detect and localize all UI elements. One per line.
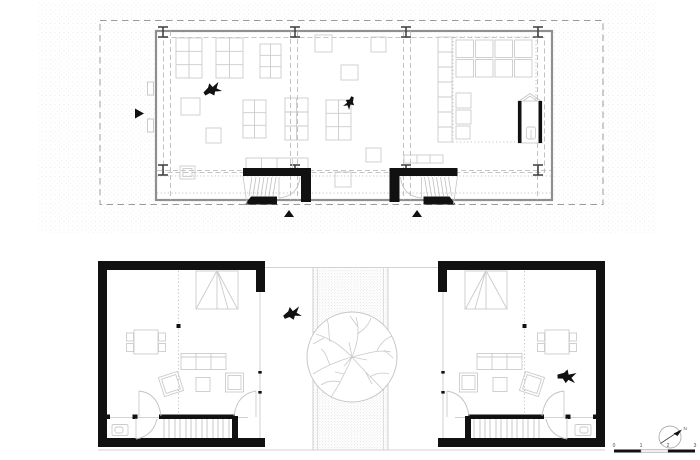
bird-icon — [556, 367, 578, 385]
scale-bar: 0 1 2 3 — [613, 443, 697, 453]
upper-floor-plan — [38, 2, 656, 233]
north-label: N — [684, 426, 687, 431]
courtyard — [98, 268, 605, 451]
scale-tick-label: 3 — [694, 443, 697, 449]
dining-table — [127, 330, 166, 354]
room-left — [98, 261, 265, 447]
tree-canopy-icon — [307, 312, 397, 402]
fireplace — [518, 94, 542, 144]
bed — [196, 271, 238, 309]
scale-tick-label: 0 — [613, 443, 616, 449]
lower-floor-plan — [98, 261, 605, 450]
scale-tick-label: 1 — [640, 443, 643, 449]
architectural-drawing-sheet: 0 1 2 3 N — [0, 0, 700, 460]
north-arrow-icon: N — [659, 426, 687, 448]
bird-icon — [282, 305, 302, 321]
bathroom-fixture — [112, 425, 128, 436]
ottoman — [196, 378, 210, 392]
armchair — [226, 373, 244, 392]
sofa — [181, 354, 226, 370]
room-right — [438, 261, 605, 447]
tilted-chair — [158, 371, 183, 396]
floor-plans-canvas: 0 1 2 3 N — [0, 0, 700, 460]
stair-treads — [164, 419, 229, 438]
